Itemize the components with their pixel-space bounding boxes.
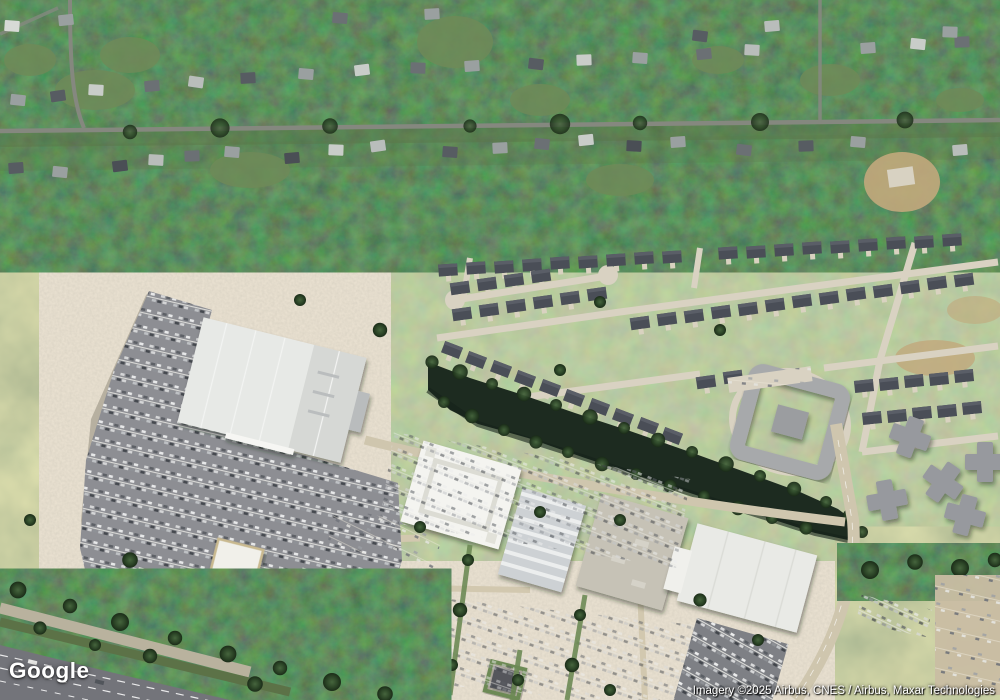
satellite-imagery-canvas	[0, 0, 1000, 700]
satellite-map[interactable]: Google Imagery ©2025 Airbus, CNES / Airb…	[0, 0, 1000, 700]
google-logo[interactable]: Google	[9, 658, 90, 684]
imagery-attribution: Imagery ©2025 Airbus, CNES / Airbus, Max…	[693, 685, 995, 697]
